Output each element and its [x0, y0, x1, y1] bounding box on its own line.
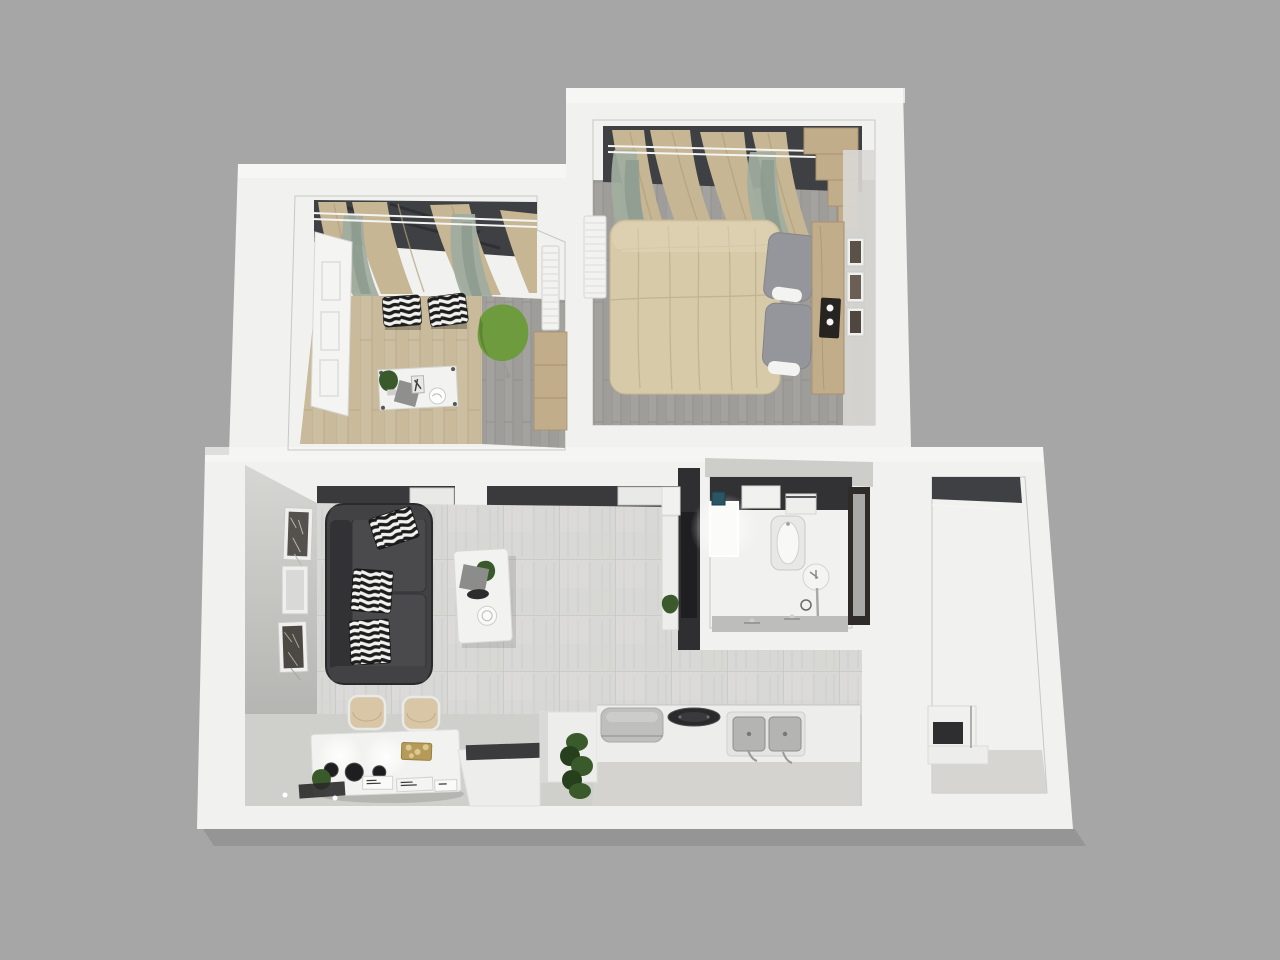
white-cabinet: [662, 487, 680, 515]
study-desk: [378, 366, 458, 410]
white-door: [618, 487, 664, 505]
wall-pillar: [455, 486, 487, 506]
wood-cabinet: [534, 332, 567, 430]
utility-window: [932, 477, 1022, 503]
peninsula-shade: [540, 712, 548, 782]
bedroom-radiator: [584, 216, 606, 298]
faucet-stem: [817, 588, 818, 620]
gray-appliance: [601, 708, 663, 742]
teal-box: [712, 492, 725, 505]
round-cooktop: [668, 708, 720, 726]
washing-machine: [786, 494, 816, 514]
bathtub: [771, 516, 805, 570]
gray-tray: [459, 564, 489, 593]
gold-tray: [401, 742, 432, 760]
double-bed: [610, 220, 780, 394]
wall-top-face: [205, 447, 1043, 462]
room-study: [288, 196, 567, 450]
double-sink: [727, 712, 805, 763]
room-bedroom: [584, 120, 875, 425]
kitchen-floor-strip: [592, 756, 860, 806]
wall-top-face: [238, 164, 566, 178]
bedroom-wall-frames: [847, 238, 864, 336]
wall-top-face: [566, 88, 905, 103]
corner-sofa: [326, 504, 432, 684]
open-door: [311, 232, 352, 416]
microwave: [933, 722, 963, 744]
white-shelf: [742, 486, 780, 508]
floor-light-dot: [333, 796, 338, 801]
dark-counter-inset: [466, 743, 540, 761]
vanity-counter: [712, 615, 848, 633]
floor-plan-canvas: [0, 0, 1280, 960]
study-radiator: [542, 246, 559, 330]
frosted-door: [848, 487, 870, 625]
floor-light-dot: [283, 793, 288, 798]
plate: [477, 606, 497, 626]
ground-shadow: [203, 829, 1086, 846]
candle-tray: [819, 298, 841, 339]
white-door: [410, 488, 454, 505]
plate: [429, 388, 446, 405]
tv-accent-wall: [662, 468, 700, 650]
coffee-table: [454, 549, 516, 648]
floor-plan-render: [0, 0, 1280, 960]
black-bowl: [345, 763, 364, 782]
